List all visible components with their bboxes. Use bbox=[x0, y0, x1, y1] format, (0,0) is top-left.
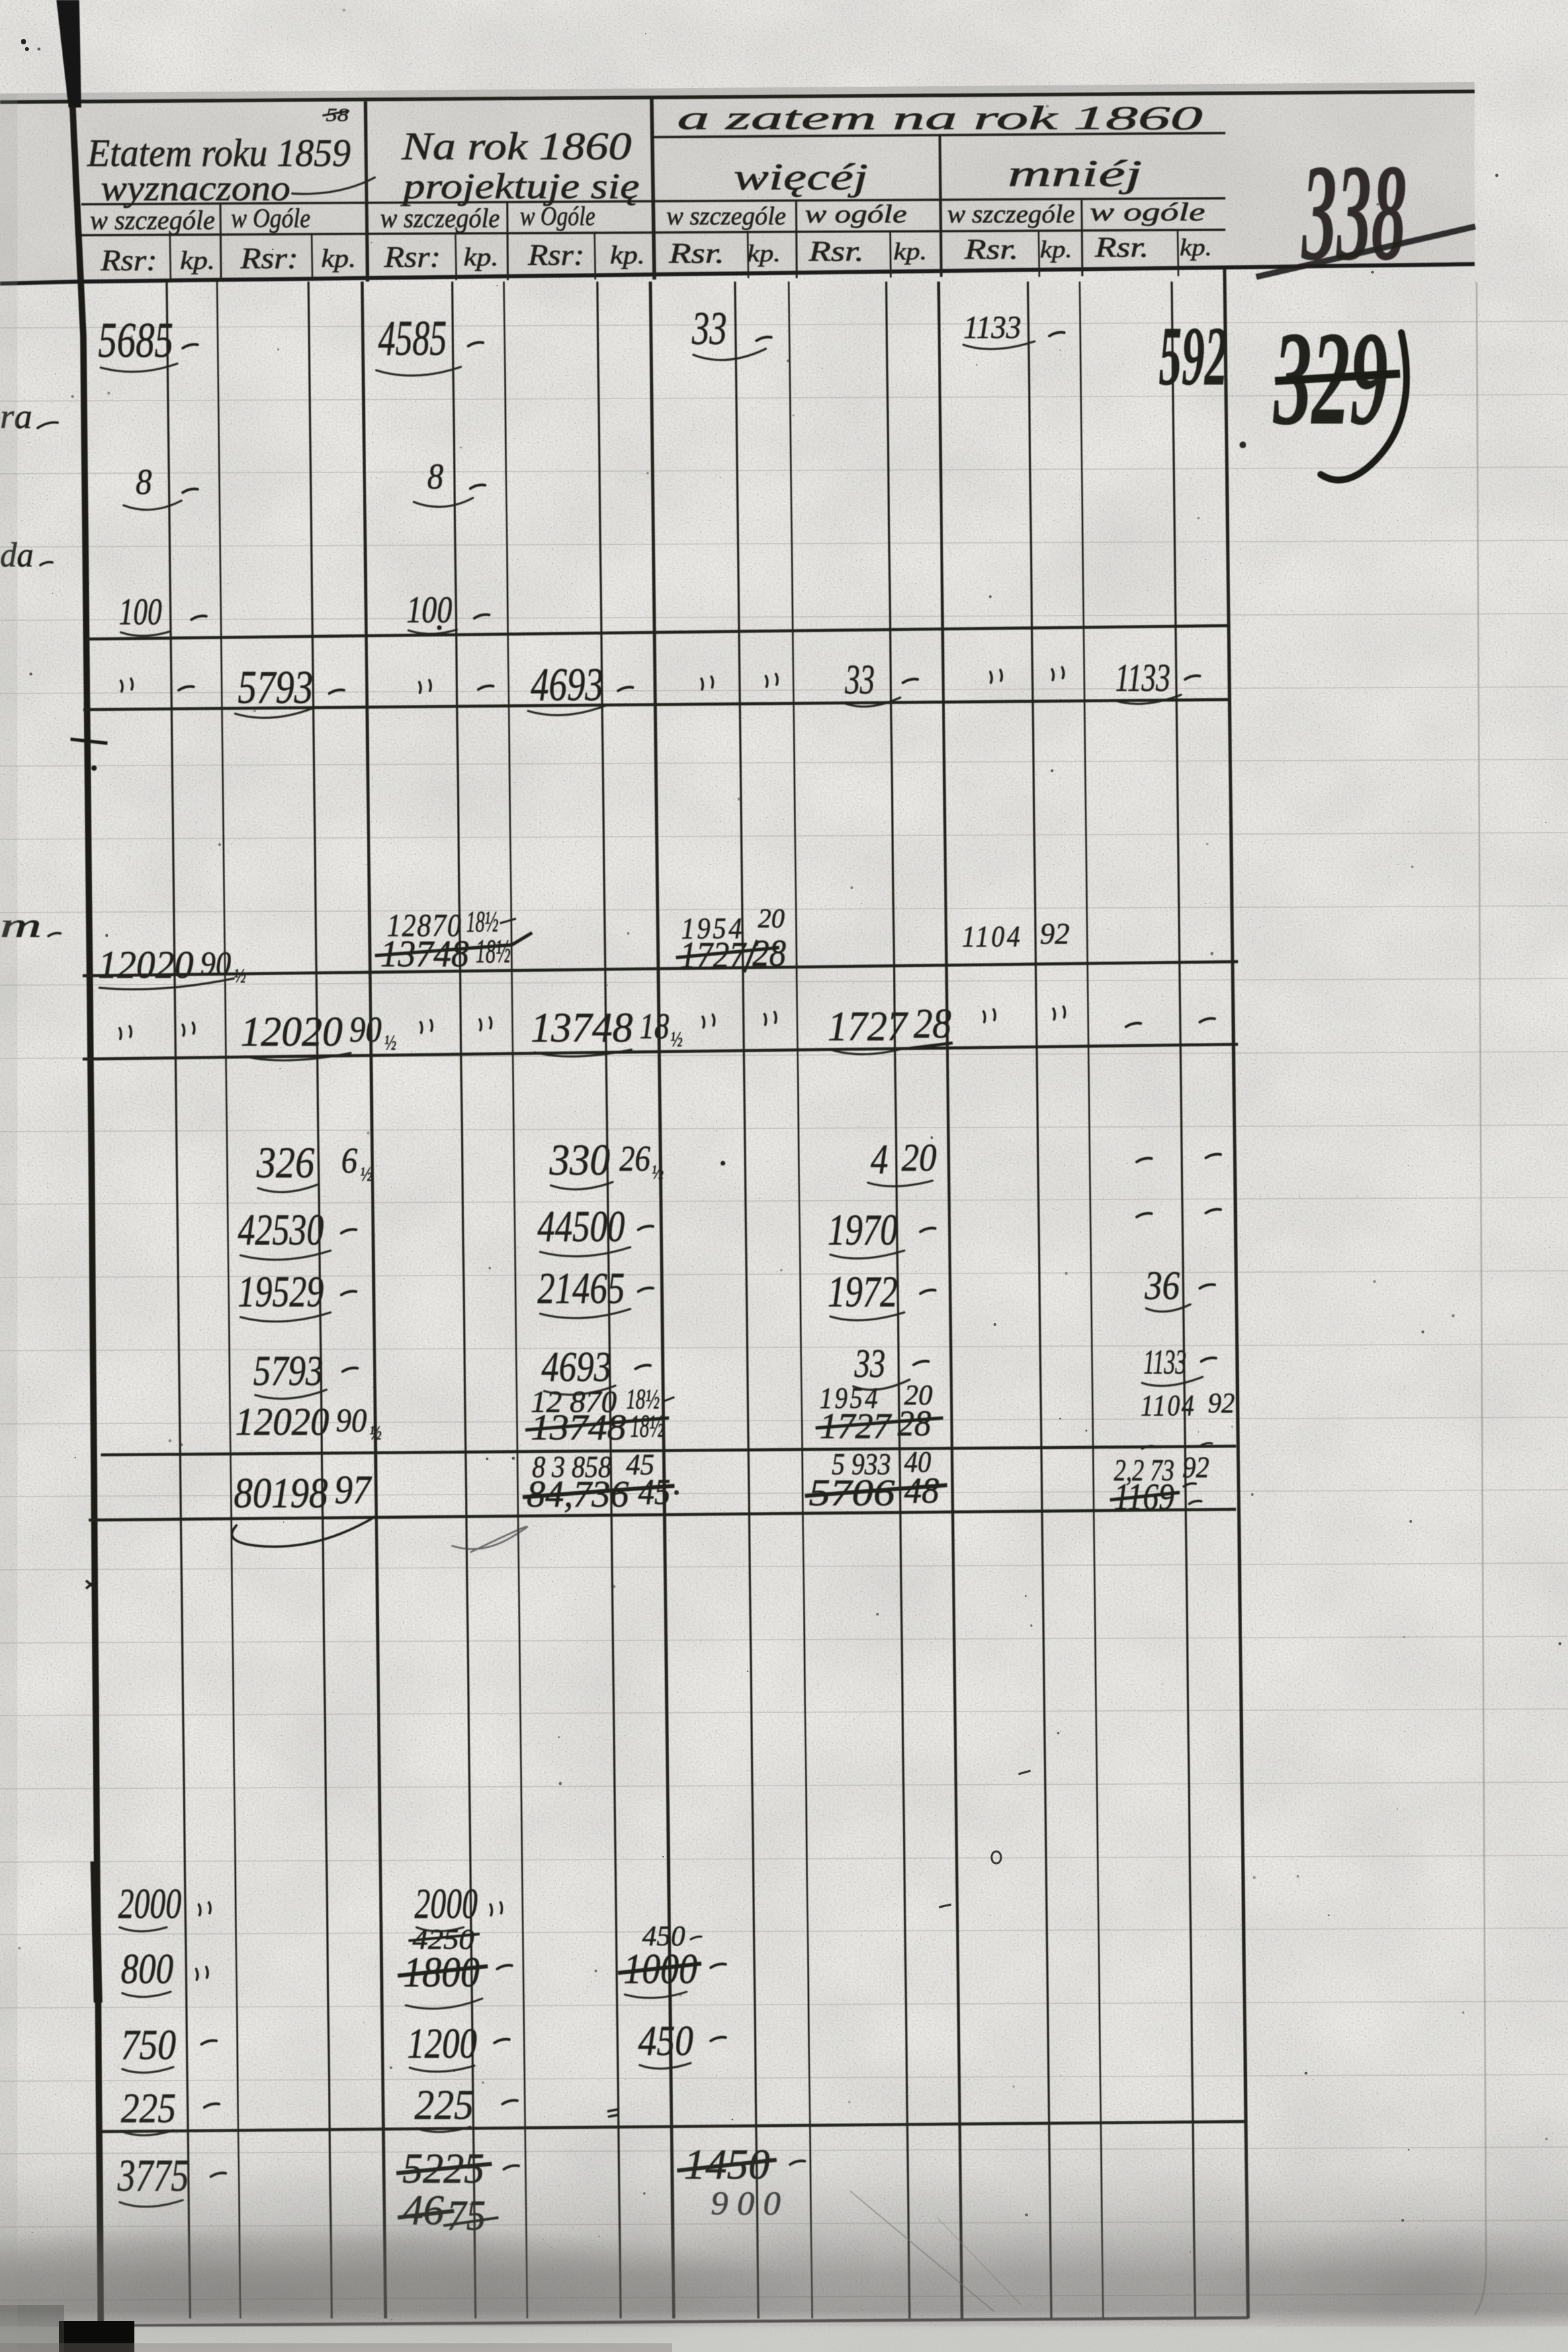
svg-text:97: 97 bbox=[335, 1468, 373, 1512]
svg-text:Rsr.: Rsr. bbox=[1094, 233, 1149, 263]
svg-text:8: 8 bbox=[427, 456, 443, 497]
svg-text:½: ½ bbox=[670, 1027, 683, 1051]
svg-text:13748: 13748 bbox=[531, 1005, 633, 1051]
svg-text:36: 36 bbox=[1144, 1263, 1180, 1308]
svg-text:330: 330 bbox=[549, 1136, 610, 1185]
svg-text:więcéj: więcéj bbox=[734, 157, 868, 198]
svg-text:Rsr:: Rsr: bbox=[527, 239, 584, 271]
svg-text:326: 326 bbox=[256, 1138, 314, 1187]
svg-text:12020: 12020 bbox=[241, 1009, 343, 1055]
svg-text:kp.: kp. bbox=[321, 245, 356, 273]
svg-text:kp.: kp. bbox=[464, 243, 498, 271]
svg-text:100: 100 bbox=[119, 591, 162, 633]
svg-text:w ogóle: w ogóle bbox=[805, 200, 907, 228]
svg-text:w szczególe: w szczególe bbox=[666, 202, 786, 230]
svg-text:1972: 1972 bbox=[828, 1267, 898, 1316]
svg-text:1104: 1104 bbox=[962, 920, 1022, 953]
svg-text:kp.: kp. bbox=[1040, 236, 1072, 263]
svg-text:19529: 19529 bbox=[238, 1267, 324, 1316]
svg-text:projektuje się: projektuje się bbox=[400, 166, 640, 206]
svg-text:1727: 1727 bbox=[828, 1004, 909, 1050]
svg-text:18½: 18½ bbox=[476, 932, 511, 970]
svg-text:Rsr.: Rsr. bbox=[668, 239, 724, 269]
svg-text:92: 92 bbox=[1208, 1388, 1235, 1419]
svg-text:Rsr:: Rsr: bbox=[240, 242, 298, 275]
svg-text:1970: 1970 bbox=[828, 1206, 898, 1255]
svg-text:w szczególe: w szczególe bbox=[380, 203, 500, 233]
svg-text:½: ½ bbox=[652, 1161, 664, 1183]
svg-text:338: 338 bbox=[1301, 136, 1406, 289]
svg-text:42530: 42530 bbox=[238, 1206, 324, 1255]
svg-text:800: 800 bbox=[121, 1945, 173, 1992]
svg-text:w szczególe: w szczególe bbox=[947, 200, 1075, 228]
svg-text:45: 45 bbox=[638, 1472, 670, 1512]
svg-text:wyznaczono: wyznaczono bbox=[101, 168, 290, 208]
svg-text:½: ½ bbox=[360, 1163, 372, 1185]
svg-text:a zatem na rok 1860: a zatem na rok 1860 bbox=[677, 99, 1203, 136]
svg-text:6: 6 bbox=[341, 1140, 357, 1181]
svg-text:33: 33 bbox=[844, 657, 875, 703]
svg-text:4: 4 bbox=[871, 1137, 888, 1183]
svg-text:4693: 4693 bbox=[531, 659, 603, 711]
svg-text:80198: 80198 bbox=[234, 1469, 328, 1517]
svg-text:2000: 2000 bbox=[118, 1880, 181, 1927]
svg-text:Rsr:: Rsr: bbox=[384, 241, 441, 274]
svg-text:592: 592 bbox=[1159, 310, 1227, 403]
svg-text:½: ½ bbox=[234, 965, 246, 987]
svg-text:18½: 18½ bbox=[630, 1409, 664, 1444]
svg-text:kp.: kp. bbox=[747, 240, 781, 267]
svg-text:Rsr.: Rsr. bbox=[964, 235, 1018, 265]
svg-text:mniéj: mniéj bbox=[1008, 153, 1142, 195]
svg-text:90: 90 bbox=[336, 1401, 367, 1439]
svg-text:33: 33 bbox=[854, 1341, 885, 1386]
svg-text:1133: 1133 bbox=[1115, 656, 1170, 700]
svg-text:½: ½ bbox=[384, 1030, 396, 1054]
svg-text:1133: 1133 bbox=[963, 310, 1021, 345]
svg-text:90: 90 bbox=[200, 944, 231, 982]
svg-text:kp.: kp. bbox=[894, 238, 927, 265]
svg-text:20: 20 bbox=[758, 903, 785, 933]
svg-text:26: 26 bbox=[619, 1138, 650, 1179]
svg-text:8: 8 bbox=[136, 462, 152, 502]
svg-text:w Ogóle: w Ogóle bbox=[520, 201, 595, 231]
svg-text:2000: 2000 bbox=[415, 1880, 478, 1927]
svg-text:1104: 1104 bbox=[1141, 1389, 1196, 1422]
svg-text:21465: 21465 bbox=[537, 1264, 625, 1313]
svg-text:5793: 5793 bbox=[253, 1347, 323, 1394]
svg-text:4585: 4585 bbox=[378, 311, 447, 366]
svg-text:w ogóle: w ogóle bbox=[1090, 198, 1205, 226]
svg-text:5793: 5793 bbox=[238, 662, 313, 714]
svg-text:5685: 5685 bbox=[98, 313, 173, 368]
svg-text:33: 33 bbox=[691, 303, 727, 355]
svg-text:w Ogóle: w Ogóle bbox=[231, 203, 310, 233]
svg-text:Rsr:: Rsr: bbox=[100, 244, 157, 277]
svg-text:4693: 4693 bbox=[541, 1343, 611, 1390]
svg-text:12020: 12020 bbox=[98, 943, 193, 986]
svg-text:18: 18 bbox=[640, 1006, 669, 1046]
svg-text:92: 92 bbox=[1182, 1451, 1209, 1484]
svg-text:100: 100 bbox=[406, 589, 452, 631]
svg-text:w szczególe: w szczególe bbox=[90, 205, 215, 235]
svg-text:48: 48 bbox=[904, 1470, 939, 1511]
svg-text:1133: 1133 bbox=[1143, 1343, 1186, 1382]
svg-text:44500: 44500 bbox=[537, 1202, 625, 1251]
svg-text:Rsr.: Rsr. bbox=[808, 237, 864, 267]
svg-text:kp.: kp. bbox=[610, 241, 645, 269]
svg-text:28: 28 bbox=[898, 1403, 931, 1443]
svg-text:92: 92 bbox=[1040, 917, 1070, 950]
svg-text:kp.: kp. bbox=[1180, 234, 1212, 261]
svg-text:90: 90 bbox=[349, 1009, 382, 1050]
svg-text:kp.: kp. bbox=[180, 247, 215, 275]
svg-text:28: 28 bbox=[752, 933, 786, 974]
svg-text:28: 28 bbox=[914, 1001, 951, 1047]
svg-text:½: ½ bbox=[369, 1422, 382, 1444]
svg-text:Na rok 1860: Na rok 1860 bbox=[401, 124, 631, 168]
svg-text:12020: 12020 bbox=[235, 1400, 329, 1443]
svg-text:20: 20 bbox=[902, 1136, 937, 1179]
